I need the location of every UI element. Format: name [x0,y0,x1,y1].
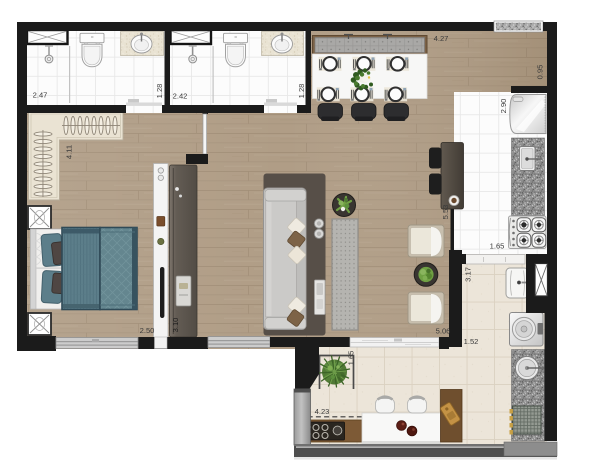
svg-text:2.42: 2.42 [173,92,188,101]
svg-text:5.53: 5.53 [441,205,450,220]
svg-text:0.95: 0.95 [536,65,545,80]
svg-text:2.50: 2.50 [140,326,155,335]
svg-text:1.65: 1.65 [346,351,355,366]
svg-text:4.23: 4.23 [315,407,330,416]
svg-text:2.90: 2.90 [499,99,508,114]
svg-text:4.27: 4.27 [434,34,449,43]
svg-text:2.47: 2.47 [33,91,48,100]
svg-text:1.28: 1.28 [155,84,164,99]
svg-text:4.11: 4.11 [65,145,74,159]
svg-text:3.17: 3.17 [464,267,473,282]
svg-text:1.52: 1.52 [464,337,479,346]
svg-text:1.28: 1.28 [297,84,306,99]
svg-text:1.65: 1.65 [490,242,505,251]
svg-text:5.06: 5.06 [436,327,451,336]
svg-text:3.10: 3.10 [171,318,180,333]
